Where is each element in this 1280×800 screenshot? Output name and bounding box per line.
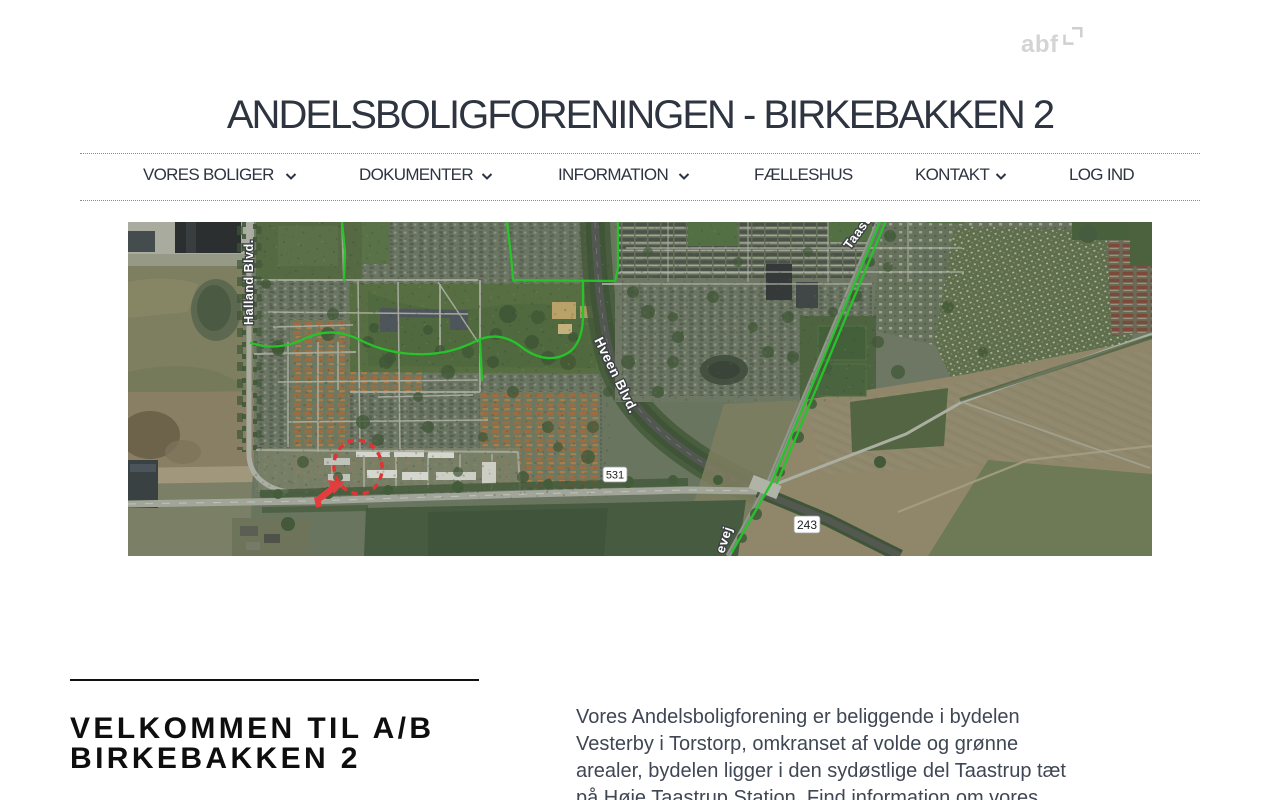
svg-text:243: 243: [797, 518, 817, 532]
svg-text:531: 531: [606, 470, 624, 482]
svg-text:Halland Blvd.: Halland Blvd.: [242, 239, 256, 325]
